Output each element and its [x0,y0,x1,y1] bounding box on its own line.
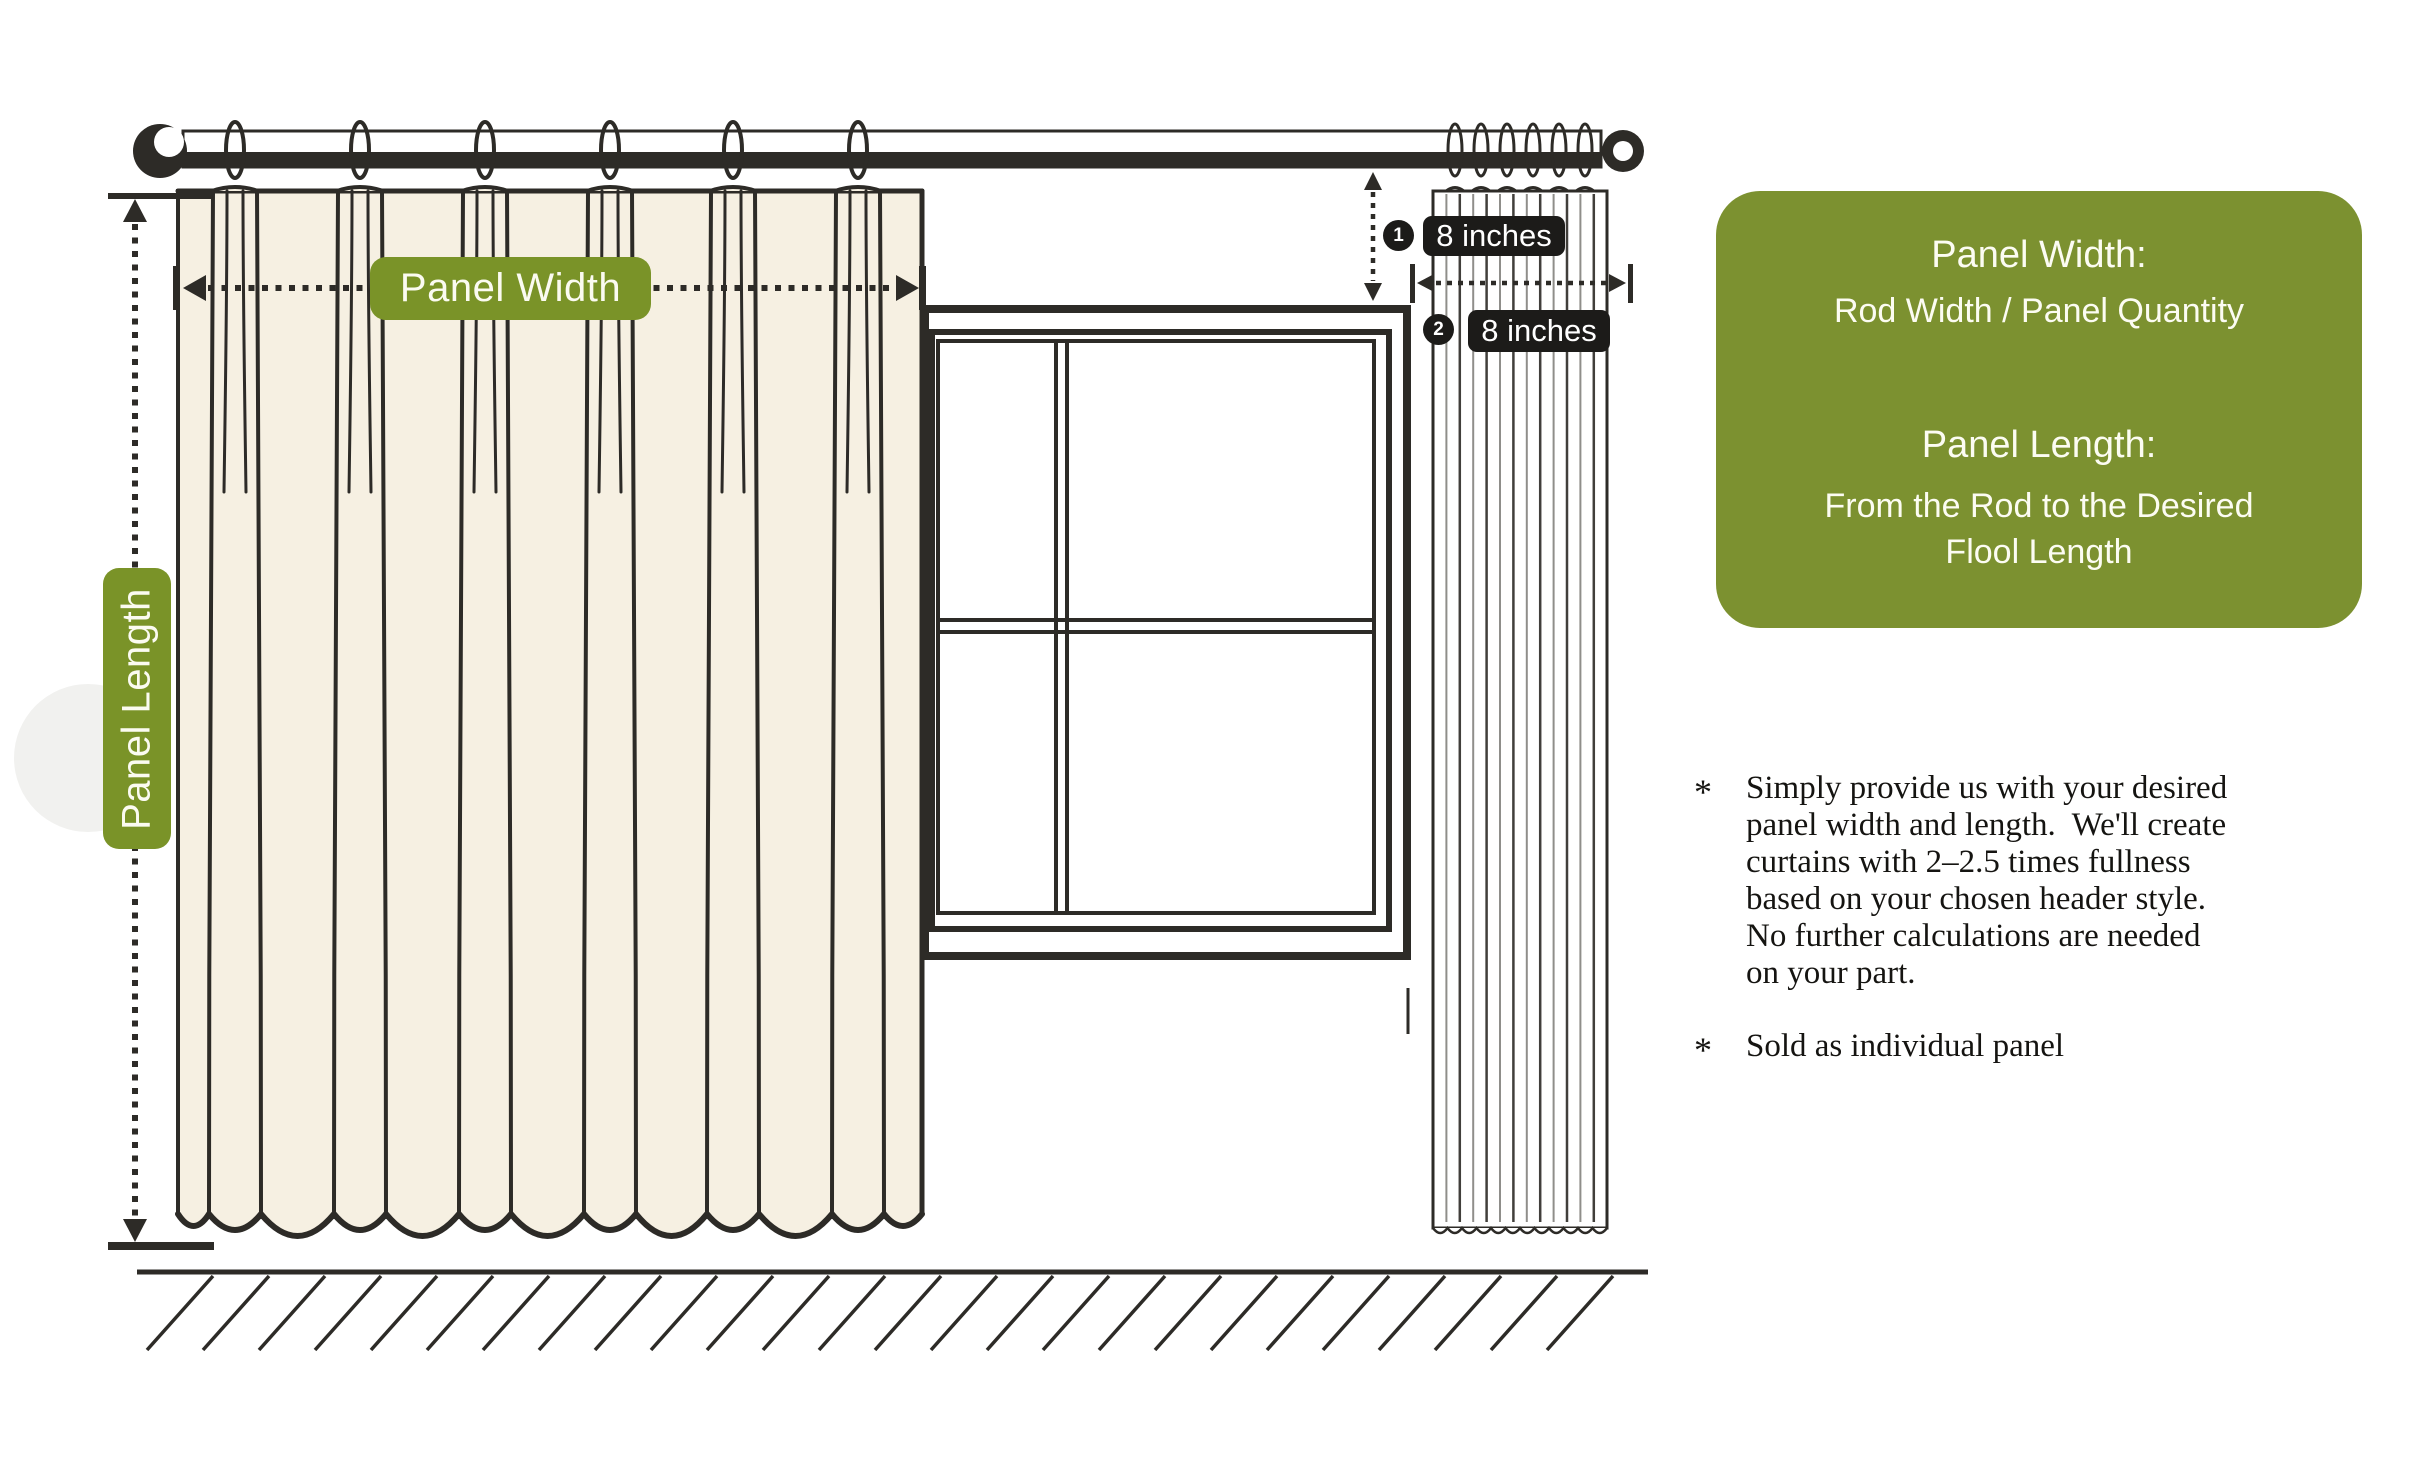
measurement-1-number: 1 [1383,220,1414,251]
panel-length-label-text: Panel Length [115,588,160,830]
note-item: * Simply provide us with your desired pa… [1694,770,2404,992]
note-text: Simply provide us with your desired pane… [1746,770,2227,992]
notes-section: * Simply provide us with your desired pa… [1694,770,2404,1069]
curtain-rod [183,131,1601,167]
note-marker: * [1694,770,1746,811]
left-finial-icon [133,124,187,178]
info-box-length-title: Panel Length: [1716,423,2362,467]
info-box-length-value: From the Rod to the Desired Flool Length [1716,483,2362,575]
note-item: * Sold as individual panel [1694,1028,2404,1069]
measurement-2-badge: 8 inches [1468,310,1610,352]
panel-width-label: Panel Width [370,257,651,320]
right-finial-icon [1602,130,1644,172]
measurement-2-number: 2 [1423,314,1454,345]
panel-width-label-text: Panel Width [400,266,621,311]
sheer-bottom-scallops [1433,1228,1607,1233]
floor-hatching [147,1276,1613,1350]
rod-to-window-arrow [1364,172,1382,301]
note-text: Sold as individual panel [1746,1028,2064,1065]
note-marker: * [1694,1028,1746,1069]
curtain-measurement-diagram: Panel Width Panel Length 1 8 inches 2 8 … [0,0,2432,1476]
measurement-1-badge: 8 inches [1423,216,1565,256]
window [925,309,1407,956]
curtain-panel [178,187,922,1236]
panel-length-label: Panel Length [103,568,171,849]
info-box-width-value: Rod Width / Panel Quantity [1716,291,2362,331]
info-box: Panel Width: Rod Width / Panel Quantity … [1716,191,2362,628]
measurement-2-text: 8 inches [1481,313,1596,349]
measurement-1-text: 8 inches [1436,218,1551,254]
info-box-width-title: Panel Width: [1716,233,2362,277]
